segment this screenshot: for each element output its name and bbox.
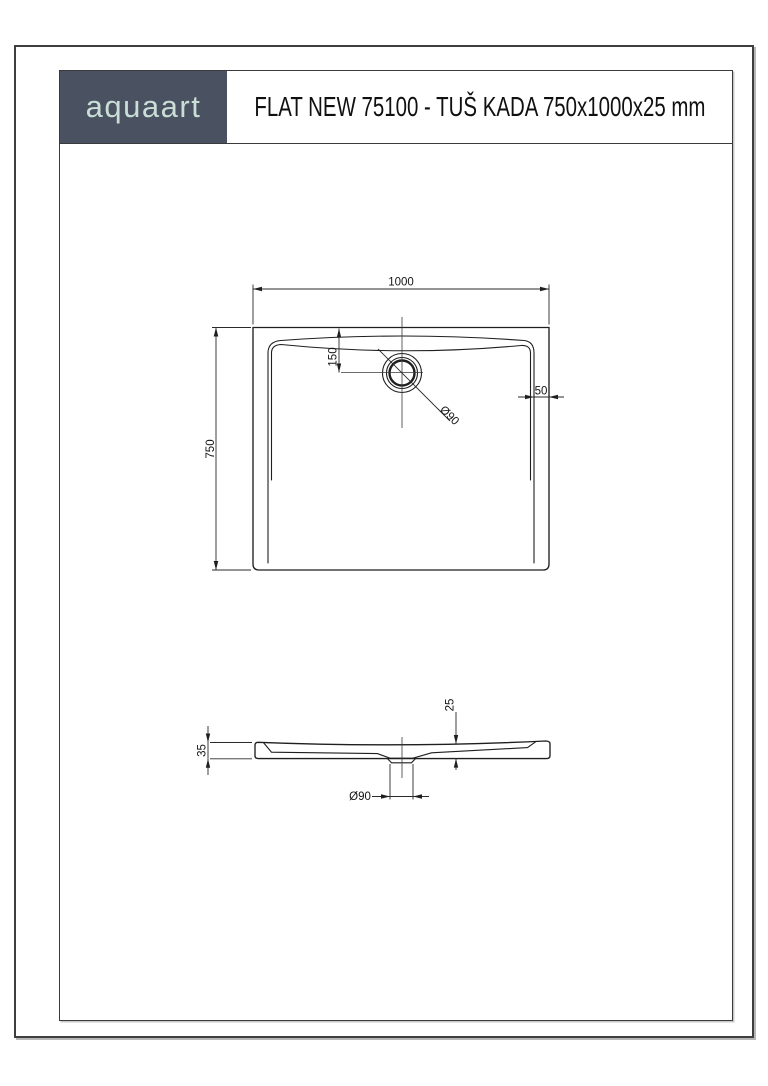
- arrowhead-up: [454, 759, 458, 768]
- plan-tray-outline: [253, 328, 549, 571]
- arrowhead-left: [549, 395, 558, 399]
- dim-rim-width: 50: [518, 386, 564, 400]
- dim-label-35: 35: [197, 744, 209, 757]
- technical-drawing-canvas: 1000 750 150 50 Ø90: [0, 0, 768, 1086]
- arrowhead-left: [253, 287, 262, 292]
- dim-label-150: 150: [328, 347, 340, 366]
- arrowhead-down: [214, 561, 219, 570]
- dim-plan-width: 1000: [253, 277, 549, 325]
- plan-drain: [341, 317, 423, 428]
- dim-drain-diameter-section: Ø90: [349, 764, 429, 803]
- plan-view: 1000 750 150 50 Ø90: [205, 277, 564, 571]
- arrowhead-left: [413, 794, 422, 798]
- arrowhead-right: [381, 794, 390, 798]
- dim-label-d90-plan: Ø90: [437, 404, 461, 428]
- section-tray-outline: [255, 741, 550, 759]
- dim-label-25: 25: [445, 699, 457, 712]
- plan-basin-wall-base: [272, 345, 531, 481]
- dim-label-1000: 1000: [388, 277, 414, 289]
- arrowhead-right: [540, 287, 549, 292]
- dim-tray-height: 25: [445, 699, 459, 770]
- plan-basin-rim-outer: [268, 336, 534, 563]
- dim-edge-height: 35: [197, 726, 253, 775]
- arrowhead-up: [214, 328, 219, 337]
- dim-drain-offset: 150: [328, 329, 342, 373]
- arrowhead-up: [206, 759, 210, 768]
- arrowhead-down: [206, 734, 210, 743]
- arrowhead-up: [337, 329, 341, 338]
- dim-label-750: 750: [205, 439, 217, 458]
- section-view: 35 25 Ø90: [197, 699, 551, 803]
- dim-label-50: 50: [535, 386, 548, 398]
- dim-label-d90-section: Ø90: [349, 791, 371, 803]
- arrowhead-right: [525, 395, 534, 399]
- arrowhead-down: [454, 735, 458, 744]
- dim-plan-height: 750: [205, 328, 251, 571]
